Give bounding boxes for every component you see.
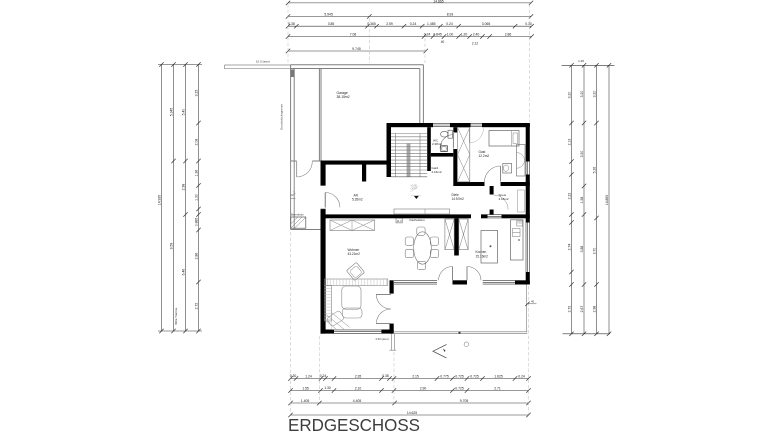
svg-text:2.15: 2.15	[412, 374, 419, 378]
svg-text:45: 45	[531, 299, 535, 303]
svg-text:9.745: 9.745	[352, 47, 361, 51]
svg-text:14.865: 14.865	[605, 195, 609, 205]
svg-text:10.0 (asm): 10.0 (asm)	[256, 60, 270, 64]
svg-text:4.18m2: 4.18m2	[499, 197, 509, 201]
svg-text:2.71: 2.71	[494, 386, 501, 390]
svg-text:2.86: 2.86	[194, 253, 198, 260]
svg-text:1.30: 1.30	[324, 386, 331, 390]
svg-text:Whs.Trennw.: Whs.Trennw.	[174, 307, 178, 325]
svg-text:3.20: 3.20	[592, 91, 596, 98]
svg-text:0.725: 0.725	[455, 374, 464, 378]
svg-text:2.08: 2.08	[194, 139, 198, 146]
svg-text:3.85: 3.85	[328, 22, 335, 26]
svg-text:1.24: 1.24	[305, 374, 312, 378]
svg-text:8.93: 8.93	[447, 12, 454, 16]
svg-text:2.74: 2.74	[567, 244, 571, 251]
svg-text:1.30: 1.30	[194, 194, 198, 201]
svg-text:15.16m2: 15.16m2	[476, 254, 489, 258]
svg-text:1.36: 1.36	[194, 170, 198, 177]
svg-text:2.35: 2.35	[355, 374, 362, 378]
svg-text:14.935: 14.935	[157, 195, 161, 205]
svg-text:1.55: 1.55	[302, 386, 309, 390]
svg-text:AP: AP	[291, 193, 295, 197]
svg-text:5.40: 5.40	[181, 109, 185, 116]
svg-text:3.50: 3.50	[580, 151, 584, 158]
svg-text:2.67: 2.67	[580, 306, 584, 313]
svg-text:0.365: 0.365	[367, 22, 376, 26]
svg-text:2.16m2: 2.16m2	[432, 170, 442, 174]
svg-text:9.705: 9.705	[460, 399, 469, 403]
svg-text:9.59: 9.59	[169, 243, 173, 250]
svg-text:2.22: 2.22	[567, 193, 571, 200]
svg-text:0.725: 0.725	[455, 386, 464, 390]
svg-text:6.46: 6.46	[181, 269, 185, 276]
svg-text:3.20: 3.20	[567, 92, 571, 99]
svg-text:3.88: 3.88	[580, 246, 584, 253]
svg-text:Brennholz: Brennholz	[291, 213, 304, 217]
svg-text:2.59: 2.59	[386, 22, 393, 26]
svg-text:0.845: 0.845	[433, 32, 442, 36]
svg-text:1.485: 1.485	[427, 22, 436, 26]
svg-text:3.065: 3.065	[482, 22, 491, 26]
svg-text:38.15m2: 38.15m2	[337, 95, 350, 99]
svg-text:0.24: 0.24	[410, 22, 417, 26]
svg-text:ERDGESCHOSS: ERDGESCHOSS	[288, 415, 420, 432]
svg-text:5.945: 5.945	[324, 12, 333, 16]
svg-text:12.2m2: 12.2m2	[479, 154, 490, 158]
svg-text:2.90: 2.90	[420, 386, 427, 390]
svg-text:1.25: 1.25	[578, 59, 584, 63]
svg-text:2.38m2: 2.38m2	[432, 142, 442, 146]
svg-text:Grundstücksgrenze: Grundstücksgrenze	[280, 104, 284, 130]
svg-text:0.885: 0.885	[194, 218, 198, 227]
svg-text:2.13: 2.13	[567, 139, 571, 146]
svg-text:0.24: 0.24	[518, 374, 525, 378]
svg-text:2.10: 2.10	[355, 386, 362, 390]
svg-text:Kachelofen: Kachelofen	[410, 218, 425, 222]
svg-text:2.12: 2.12	[472, 42, 478, 46]
svg-text:1.00: 1.00	[447, 32, 454, 36]
svg-text:0.24: 0.24	[320, 374, 327, 378]
svg-text:2.98: 2.98	[592, 306, 596, 313]
svg-text:3.50 (asm): 3.50 (asm)	[375, 337, 388, 341]
svg-text:0.24: 0.24	[446, 22, 453, 26]
svg-text:0.775: 0.775	[440, 374, 449, 378]
svg-text:2.98: 2.98	[181, 184, 185, 191]
svg-text:2.72: 2.72	[194, 303, 198, 310]
svg-text:14.57m2: 14.57m2	[452, 197, 465, 201]
svg-text:4.405: 4.405	[353, 399, 362, 403]
svg-text:1.405: 1.405	[301, 399, 310, 403]
svg-text:40: 40	[441, 40, 445, 44]
svg-text:5.345: 5.345	[169, 108, 173, 117]
svg-text:3.70: 3.70	[592, 248, 596, 255]
svg-text:OKFF: OKFF	[411, 188, 418, 191]
svg-text:0.725: 0.725	[470, 374, 479, 378]
svg-text:3.25: 3.25	[194, 90, 198, 97]
svg-text:1.20: 1.20	[461, 32, 468, 36]
svg-text:0.38: 0.38	[382, 374, 389, 378]
svg-text:14.865: 14.865	[433, 0, 443, 4]
svg-text:0.24: 0.24	[424, 32, 431, 36]
svg-text:3.20: 3.20	[580, 91, 584, 98]
svg-text:0.30: 0.30	[525, 22, 532, 26]
svg-text:1.625: 1.625	[494, 374, 503, 378]
svg-text:43.21m2: 43.21m2	[348, 252, 361, 256]
svg-text:0.38: 0.38	[288, 22, 295, 26]
svg-text:2.40: 2.40	[473, 32, 480, 36]
svg-text:5.26: 5.26	[592, 167, 596, 174]
svg-text:11.2: 11.2	[397, 219, 403, 223]
svg-text:5.35m2: 5.35m2	[352, 198, 363, 202]
svg-text:7.08: 7.08	[350, 32, 357, 36]
svg-text:2.72: 2.72	[567, 306, 571, 313]
svg-text:2.86: 2.86	[505, 32, 512, 36]
svg-text:1.58: 1.58	[580, 197, 584, 204]
